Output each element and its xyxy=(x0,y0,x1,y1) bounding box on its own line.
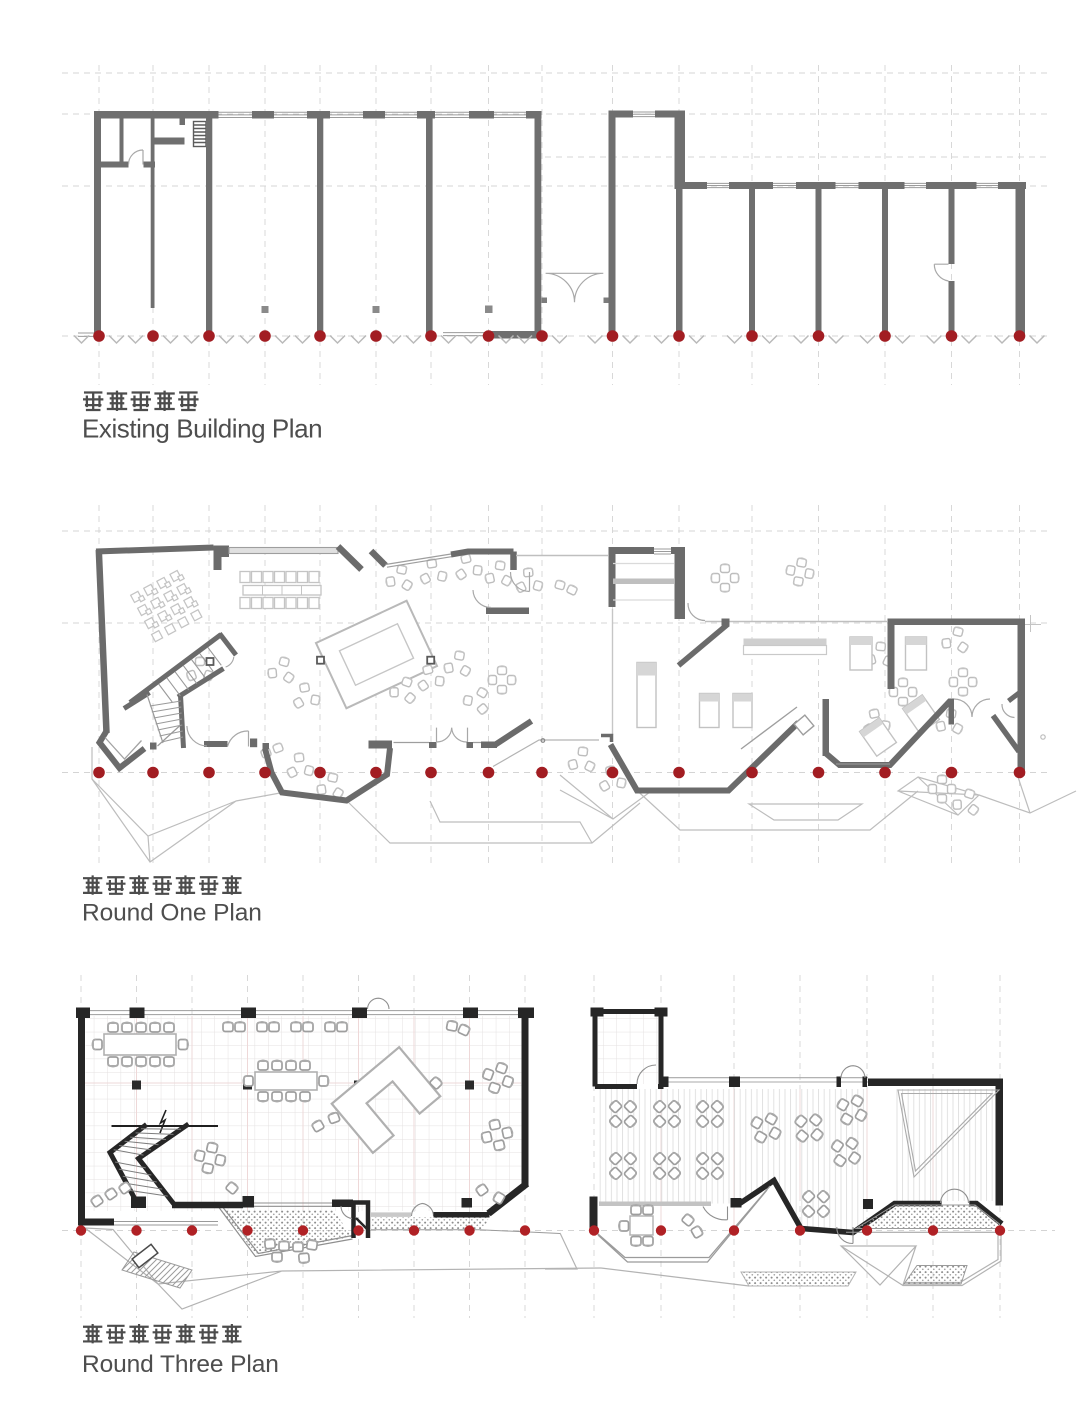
svg-text:Round One Plan: Round One Plan xyxy=(82,900,262,927)
svg-text:Round Three Plan: Round Three Plan xyxy=(82,1351,279,1378)
svg-text:Existing Building Plan: Existing Building Plan xyxy=(82,414,322,444)
